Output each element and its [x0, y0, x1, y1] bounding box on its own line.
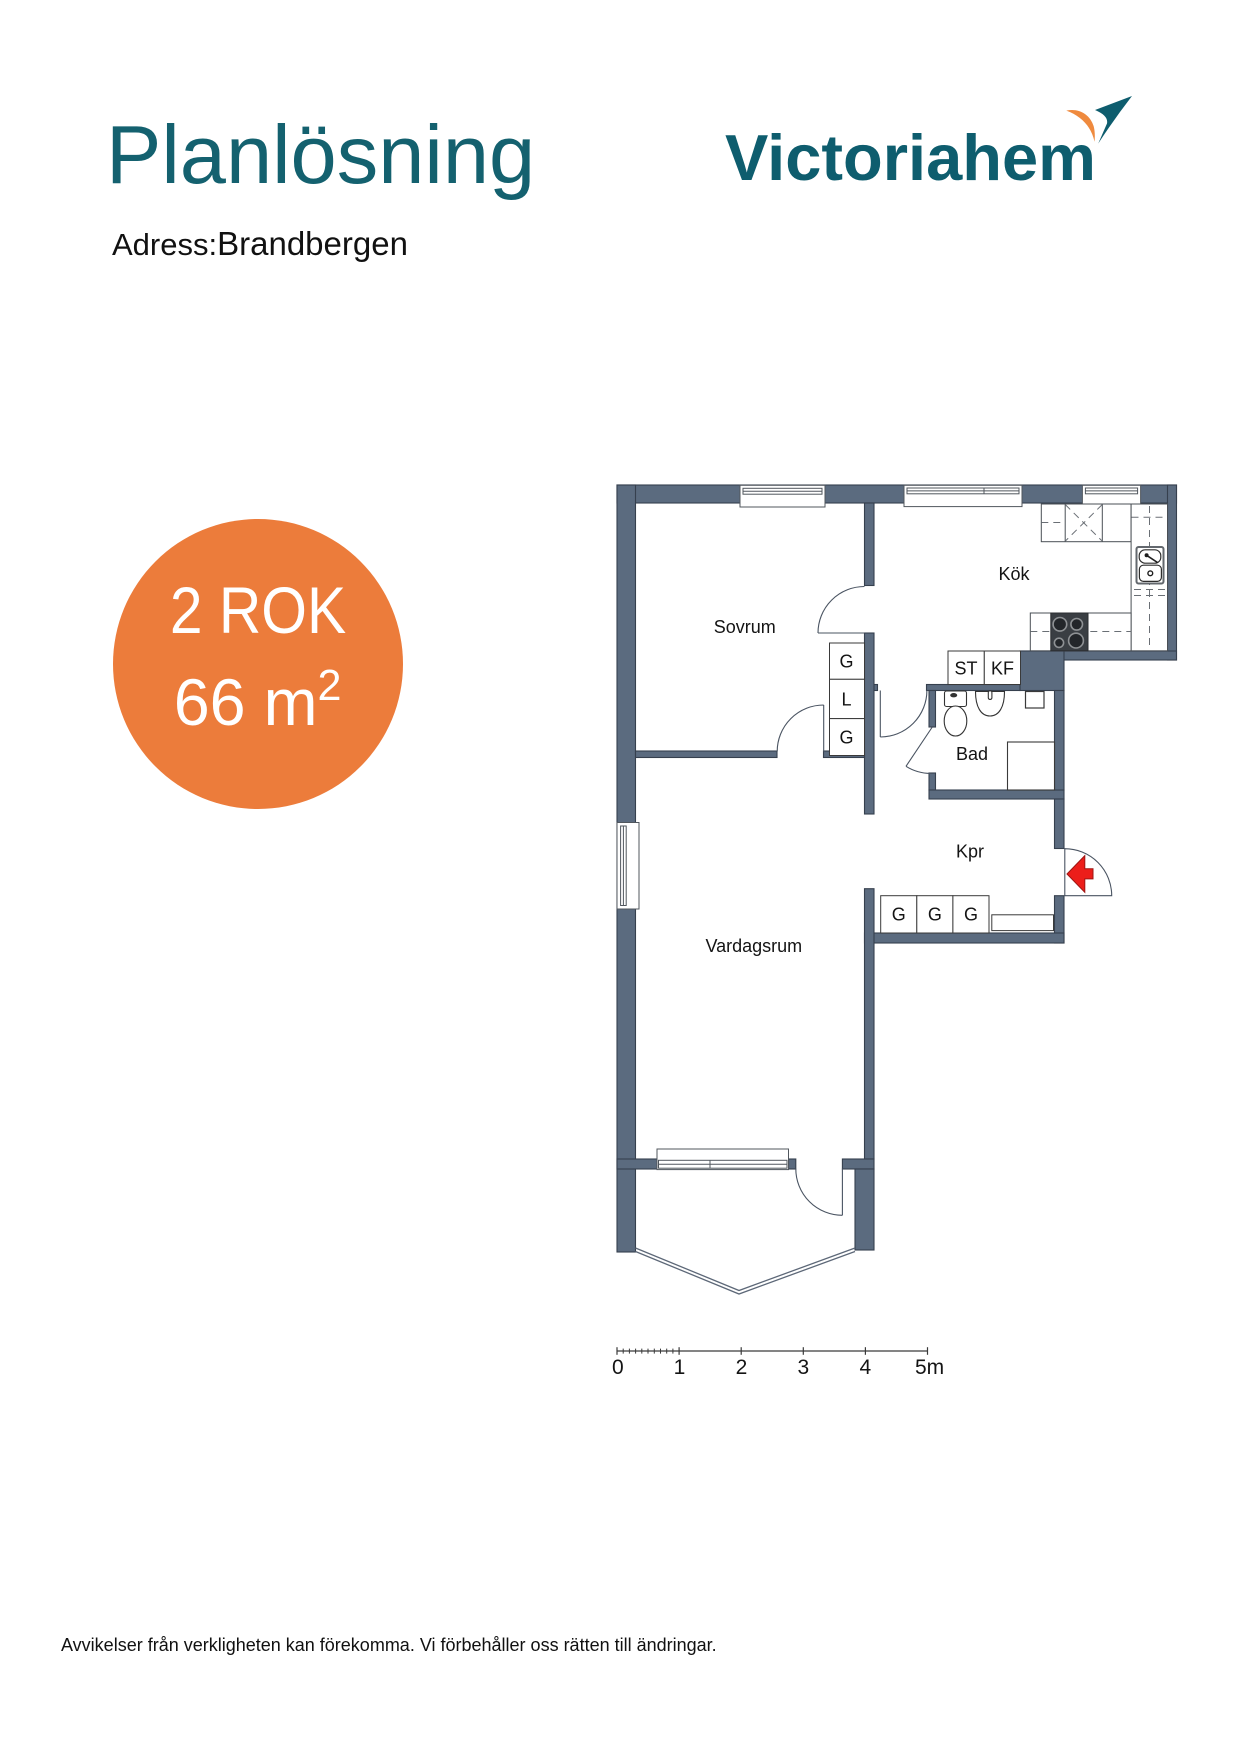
svg-text:5m: 5m — [915, 1356, 944, 1379]
svg-text:2: 2 — [736, 1356, 748, 1379]
svg-text:G: G — [839, 652, 853, 672]
svg-text:G: G — [892, 905, 906, 925]
svg-text:G: G — [839, 728, 853, 748]
svg-text:1: 1 — [674, 1356, 686, 1379]
svg-text:KF: KF — [991, 659, 1014, 679]
svg-text:G: G — [964, 905, 978, 925]
svg-text:4: 4 — [860, 1356, 872, 1379]
svg-text:ST: ST — [954, 659, 977, 679]
svg-text:Vardagsrum: Vardagsrum — [705, 936, 802, 956]
svg-text:Bad: Bad — [956, 744, 988, 764]
svg-text:G: G — [928, 905, 942, 925]
svg-text:Sovrum: Sovrum — [714, 617, 776, 637]
svg-text:L: L — [841, 690, 851, 710]
svg-text:Kök: Kök — [998, 564, 1030, 584]
svg-text:3: 3 — [797, 1356, 809, 1379]
svg-text:Kpr: Kpr — [956, 842, 984, 862]
svg-text:0: 0 — [612, 1356, 624, 1379]
